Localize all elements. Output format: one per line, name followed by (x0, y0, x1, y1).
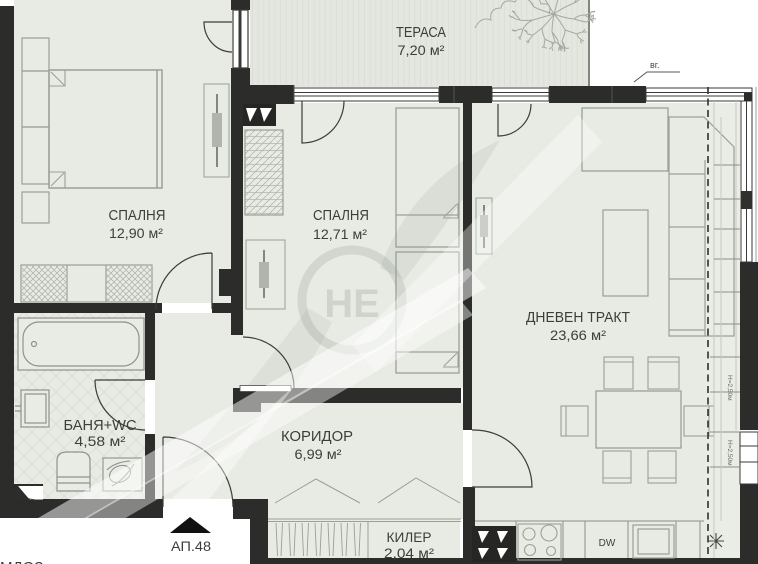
svg-text:СПАЛНЯ: СПАЛНЯ (109, 207, 166, 224)
svg-text:АП.48: АП.48 (171, 538, 211, 554)
svg-text:ТЕРАСА: ТЕРАСА (396, 24, 446, 41)
svg-text:НЕ: НЕ (324, 282, 380, 326)
svg-text:МДОЗ: МДОЗ (0, 559, 43, 564)
svg-text:12,71 м²: 12,71 м² (313, 226, 367, 242)
svg-text:КИЛЕР: КИЛЕР (387, 529, 432, 545)
svg-text:DW: DW (599, 538, 616, 549)
svg-text:23,66 м²: 23,66 м² (550, 327, 606, 343)
svg-text:Н=2,50м: Н=2,50м (726, 375, 733, 401)
svg-text:КОРИДОР: КОРИДОР (281, 428, 353, 445)
svg-text:СПАЛНЯ: СПАЛНЯ (313, 207, 369, 224)
svg-text:вг.: вг. (650, 60, 659, 70)
svg-text:7,20 м²: 7,20 м² (398, 42, 445, 58)
svg-text:Н=2,50м: Н=2,50м (726, 440, 733, 466)
svg-text:4,58 м²: 4,58 м² (75, 433, 126, 449)
svg-text:6,99 м²: 6,99 м² (295, 446, 342, 462)
svg-text:ДНЕВЕН ТРАКТ: ДНЕВЕН ТРАКТ (526, 309, 630, 326)
svg-text:2,04 м²: 2,04 м² (384, 545, 434, 561)
svg-text:БАНЯ+WC: БАНЯ+WC (64, 417, 137, 434)
svg-text:12,90 м²: 12,90 м² (109, 225, 163, 241)
